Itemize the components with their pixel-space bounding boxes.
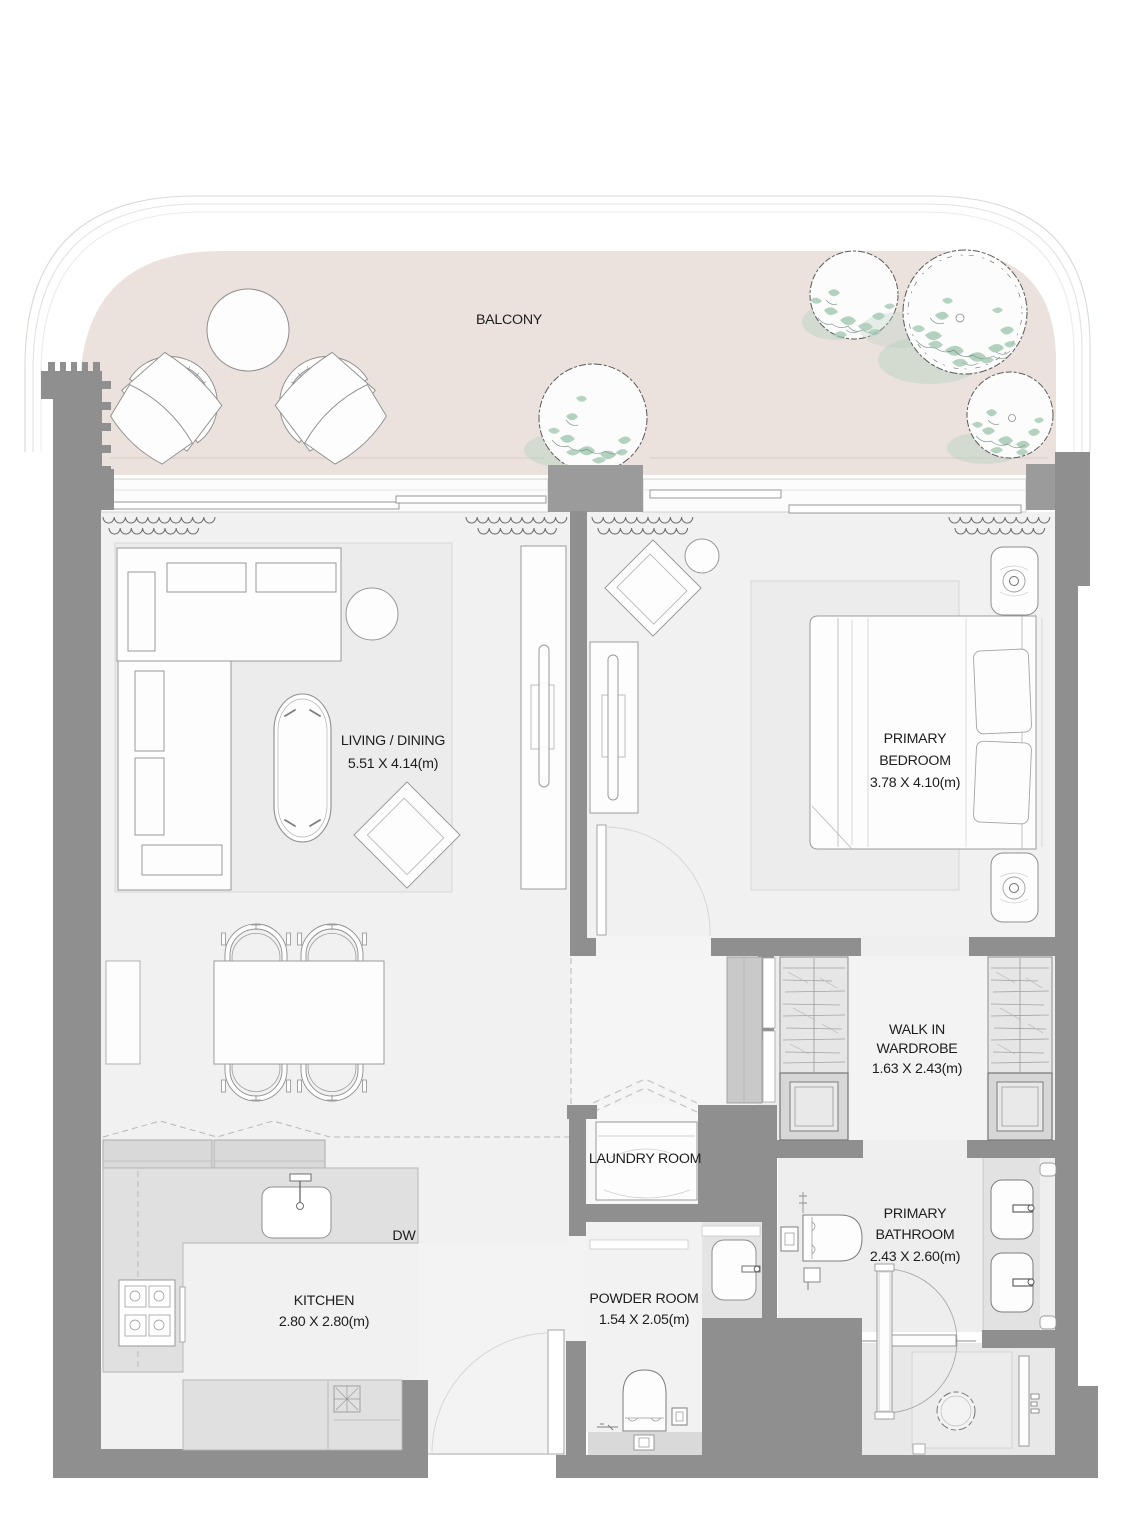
svg-text:2.43 X 2.60(m): 2.43 X 2.60(m) [870,1249,960,1265]
svg-text:DW: DW [392,1228,416,1244]
svg-text:1.63 X 2.43(m): 1.63 X 2.43(m) [872,1061,962,1077]
svg-text:PRIMARY: PRIMARY [884,1206,947,1222]
svg-text:PRIMARY: PRIMARY [884,731,947,747]
svg-text:BEDROOM: BEDROOM [879,753,951,769]
svg-text:POWDER ROOM: POWDER ROOM [589,1291,698,1307]
svg-text:5.51 X 4.14(m): 5.51 X 4.14(m) [348,756,438,772]
svg-text:3.78 X 4.10(m): 3.78 X 4.10(m) [870,775,960,791]
svg-text:BATHROOM: BATHROOM [876,1227,955,1243]
svg-text:WARDROBE: WARDROBE [876,1041,957,1057]
svg-text:2.80 X 2.80(m): 2.80 X 2.80(m) [279,1314,369,1330]
svg-text:WALK IN: WALK IN [889,1022,945,1038]
svg-text:1.54 X 2.05(m): 1.54 X 2.05(m) [599,1312,689,1328]
svg-text:LIVING / DINING: LIVING / DINING [341,733,445,749]
svg-text:KITCHEN: KITCHEN [294,1293,355,1309]
svg-text:BALCONY: BALCONY [476,312,543,328]
svg-text:LAUNDRY ROOM: LAUNDRY ROOM [589,1151,701,1167]
